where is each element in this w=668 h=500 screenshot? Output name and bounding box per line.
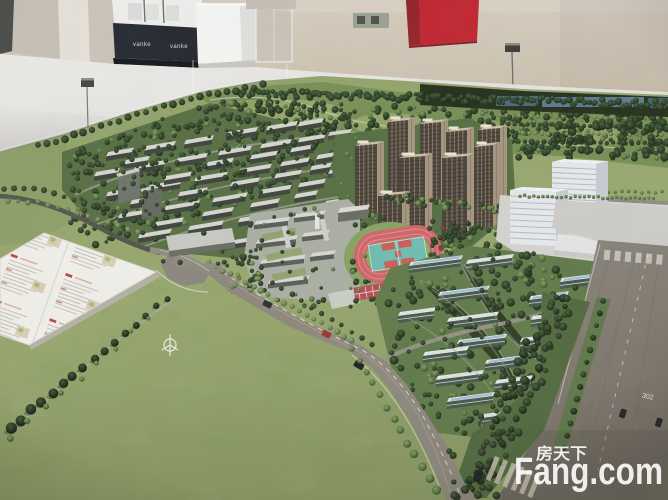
svg-text:Fang.com: Fang.com <box>514 451 663 493</box>
